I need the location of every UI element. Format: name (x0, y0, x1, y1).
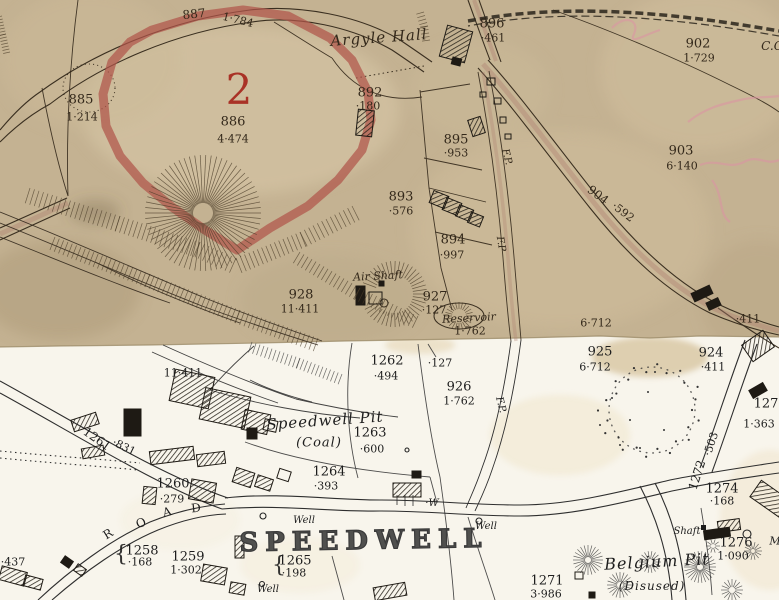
parcel-1263-area: ·600 (360, 444, 385, 455)
parcel-1264-area: ·393 (314, 481, 339, 492)
parcel-1271-number: 1271 (530, 575, 563, 588)
parcel-1273-area: 1·363 (743, 419, 775, 430)
parcel-1272-number: 1272 (687, 459, 708, 492)
well-label-3: Well (257, 585, 279, 595)
parcel-1276-area: 1·090 (717, 551, 749, 562)
footpath-label-3: F.P. (493, 396, 507, 414)
parcel-1262-number: 1262 (370, 355, 403, 368)
footpath-label-1: F.P. (499, 148, 513, 166)
road-letter-d: D (191, 502, 202, 515)
parcel-903-area: 6·140 (666, 161, 698, 172)
reservoir-name: Reservoir (442, 311, 496, 325)
well-label-1: Well (293, 516, 315, 526)
air-shaft-name: Air Shaft (353, 269, 403, 283)
parcel-925-area: 6·712 (579, 362, 611, 373)
parcel-887-area: 1·784 (221, 11, 254, 29)
parcel-1262-area: ·494 (374, 371, 399, 382)
parcel-924-area: ·411 (701, 362, 726, 373)
parcel-894-number: 894 (441, 234, 466, 247)
argyle-hall-name: Argyle Hall (330, 27, 428, 49)
area-11411-new: 11·411 (164, 368, 203, 379)
parcel-902-number: 902 (686, 38, 711, 51)
plot-2-red-numeral: 2 (226, 69, 253, 111)
parcel-903-number: 903 (669, 145, 694, 158)
road-letter-a: A (161, 505, 172, 519)
parcel-1259-number: 1259 (171, 551, 204, 564)
parcel-895-area: ·953 (444, 148, 469, 159)
parcel-1264-number: 1264 (312, 466, 345, 479)
speedwell-village-name: SPEEDWELL (239, 526, 489, 556)
boundary-abbrev: C.C (761, 40, 779, 52)
parcel-1263-number: 1263 (353, 427, 386, 440)
parcel-927-number: 927 (423, 291, 448, 304)
parcel-1265-area: ·198 (282, 568, 307, 579)
parcel-1272-area: ·503 (702, 431, 720, 458)
speedwell-pit-type: (Coal) (296, 437, 342, 450)
parcel-892-number: 892 (358, 87, 383, 100)
parcel-925-number: 925 (588, 346, 613, 359)
parcel-902-area: 1·729 (683, 53, 715, 64)
parcel-1276-number: 1276 (719, 537, 752, 550)
parcel-892-area: ·180 (356, 101, 381, 112)
road-letter-o: O (134, 516, 148, 531)
parcel-1261-area: ·831 (111, 437, 138, 458)
parcel-927-area-new: ·127 (428, 358, 453, 369)
well-label-w: ·W (425, 499, 438, 509)
well-label-2: Well (475, 522, 497, 532)
parcel-928-area: 11·411 (281, 304, 320, 315)
parcel-885-area: 1·214 (66, 112, 98, 123)
parcel-924-number: 924 (699, 347, 724, 360)
road-letter-r: R (101, 527, 115, 542)
parcel-895-number: 895 (444, 134, 469, 147)
shaft-label: Shaft (674, 527, 701, 537)
parcel-893-number: 893 (389, 191, 414, 204)
area-6712-old: 6·712 (580, 318, 612, 329)
parcel-1274-area: ·168 (710, 496, 735, 507)
parcel-885-number: 885 (69, 94, 94, 107)
parcel-1273-number: 127 (754, 398, 779, 411)
parcel-886-number: 886 (221, 116, 246, 129)
map-canvas[interactable]: 8871·784Argyle Hall896·4619021·729C.C885… (0, 0, 779, 600)
labels-layer: 8871·784Argyle Hall896·4619021·729C.C885… (0, 0, 779, 600)
parcel-904-number: 904 (585, 183, 611, 206)
parcel-1260-area: ·279 (160, 494, 185, 505)
parcel-1261-number: 1261 (81, 425, 113, 452)
parcel-894-area: ·997 (440, 250, 465, 261)
parcel-893-area: ·576 (389, 206, 414, 217)
parcel-1271-area: 3·986 (530, 589, 562, 600)
edge-letter-m: M (769, 536, 779, 547)
parcel-926-area: 1·762 (443, 396, 475, 407)
parcel-1259-area: 1·302 (170, 565, 202, 576)
parcel-887-number: 887 (182, 7, 206, 21)
belgium-pit-name: Belgium Pit (604, 551, 710, 573)
parcel-928-number: 928 (289, 289, 314, 302)
parcel-886-area: 4·474 (217, 134, 249, 145)
parcel-926-number: 926 (447, 381, 472, 394)
footpath-label-2: F.P (494, 236, 507, 253)
reservoir-area: 1·762 (454, 326, 486, 337)
parcel-1257-area: ·437 (1, 557, 26, 568)
belgium-pit-status: (Disused) (619, 580, 686, 592)
parcel-904-area: ·592 (610, 200, 636, 224)
parcel-1258-area: ·168 (128, 557, 153, 568)
area-411-old: ·411 (736, 314, 761, 325)
parcel-896-number: 896 (480, 18, 505, 31)
parcel-896-area: ·461 (481, 33, 506, 44)
parcel-1260-number: 1260 (156, 478, 189, 491)
